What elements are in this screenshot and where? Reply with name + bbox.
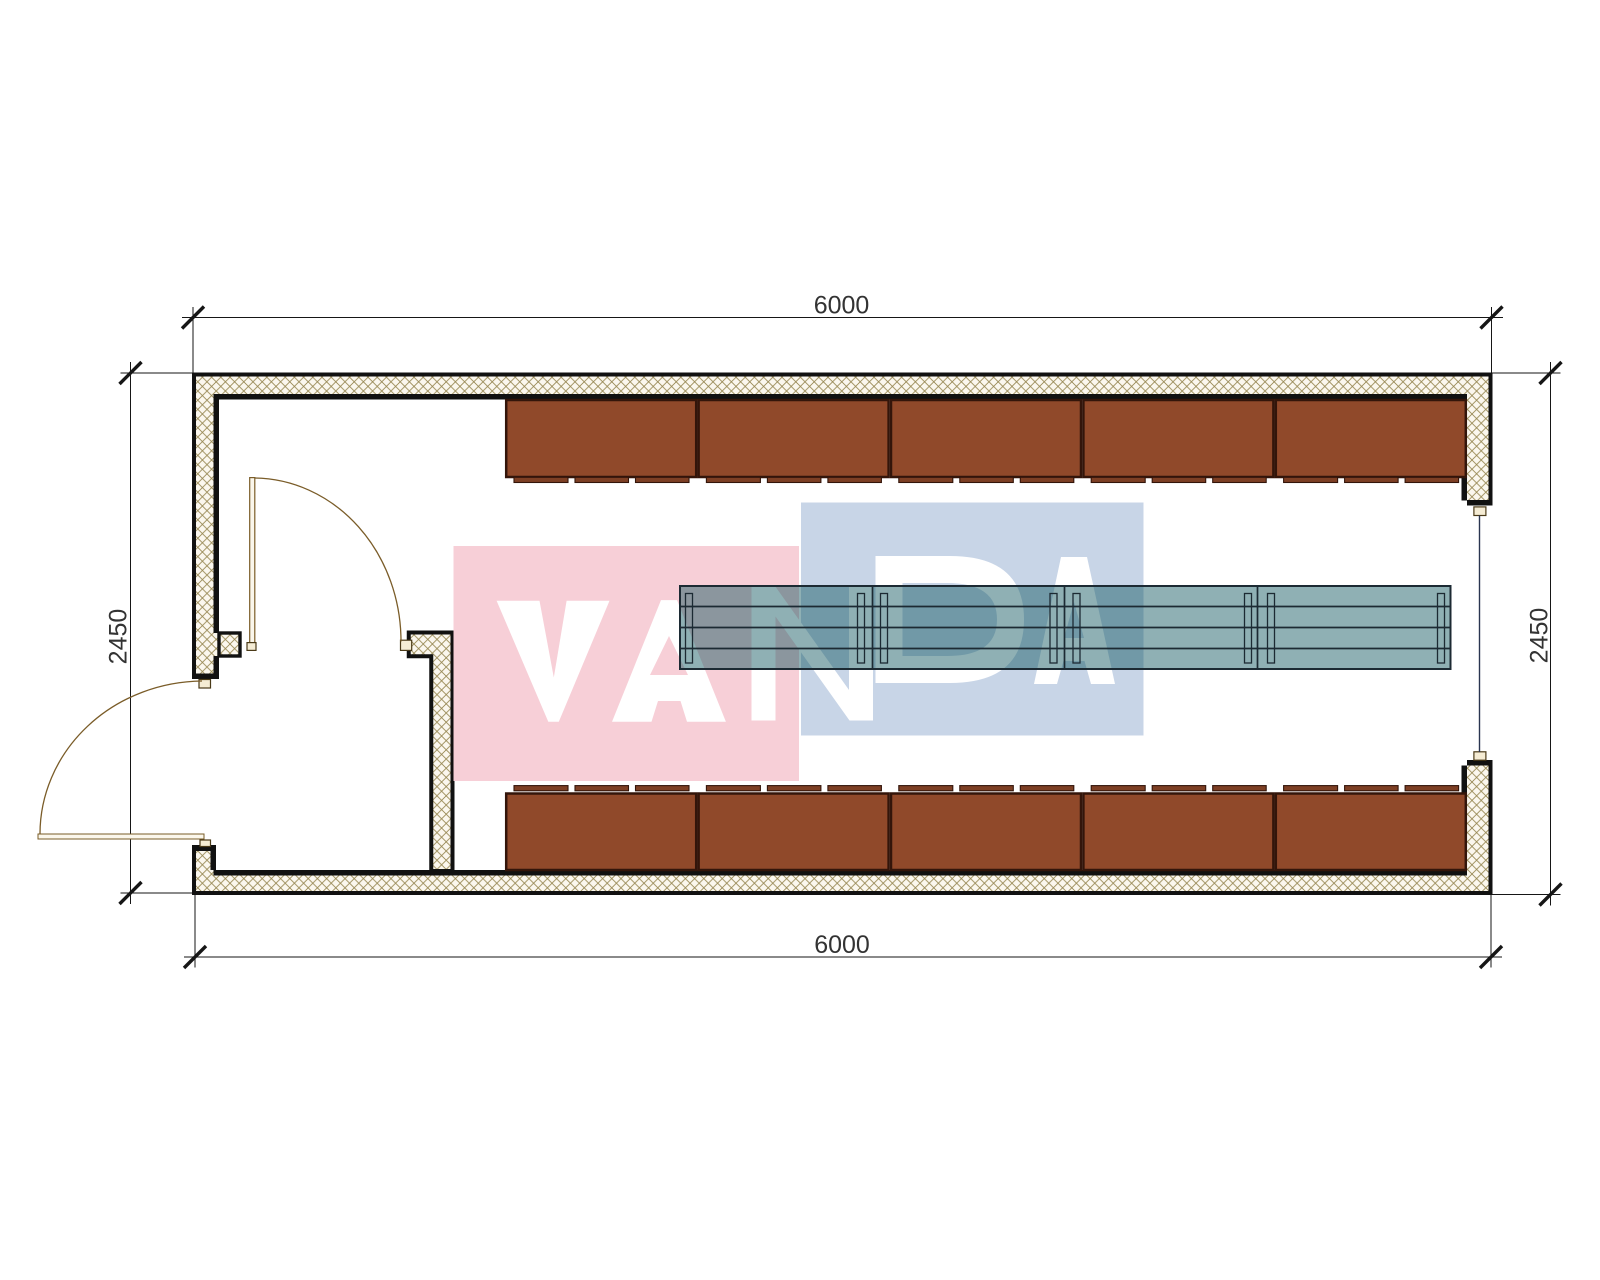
- svg-text:6000: 6000: [814, 931, 870, 959]
- svg-text:6000: 6000: [814, 292, 870, 320]
- svg-text:2450: 2450: [1526, 608, 1554, 664]
- svg-text:2450: 2450: [105, 609, 133, 665]
